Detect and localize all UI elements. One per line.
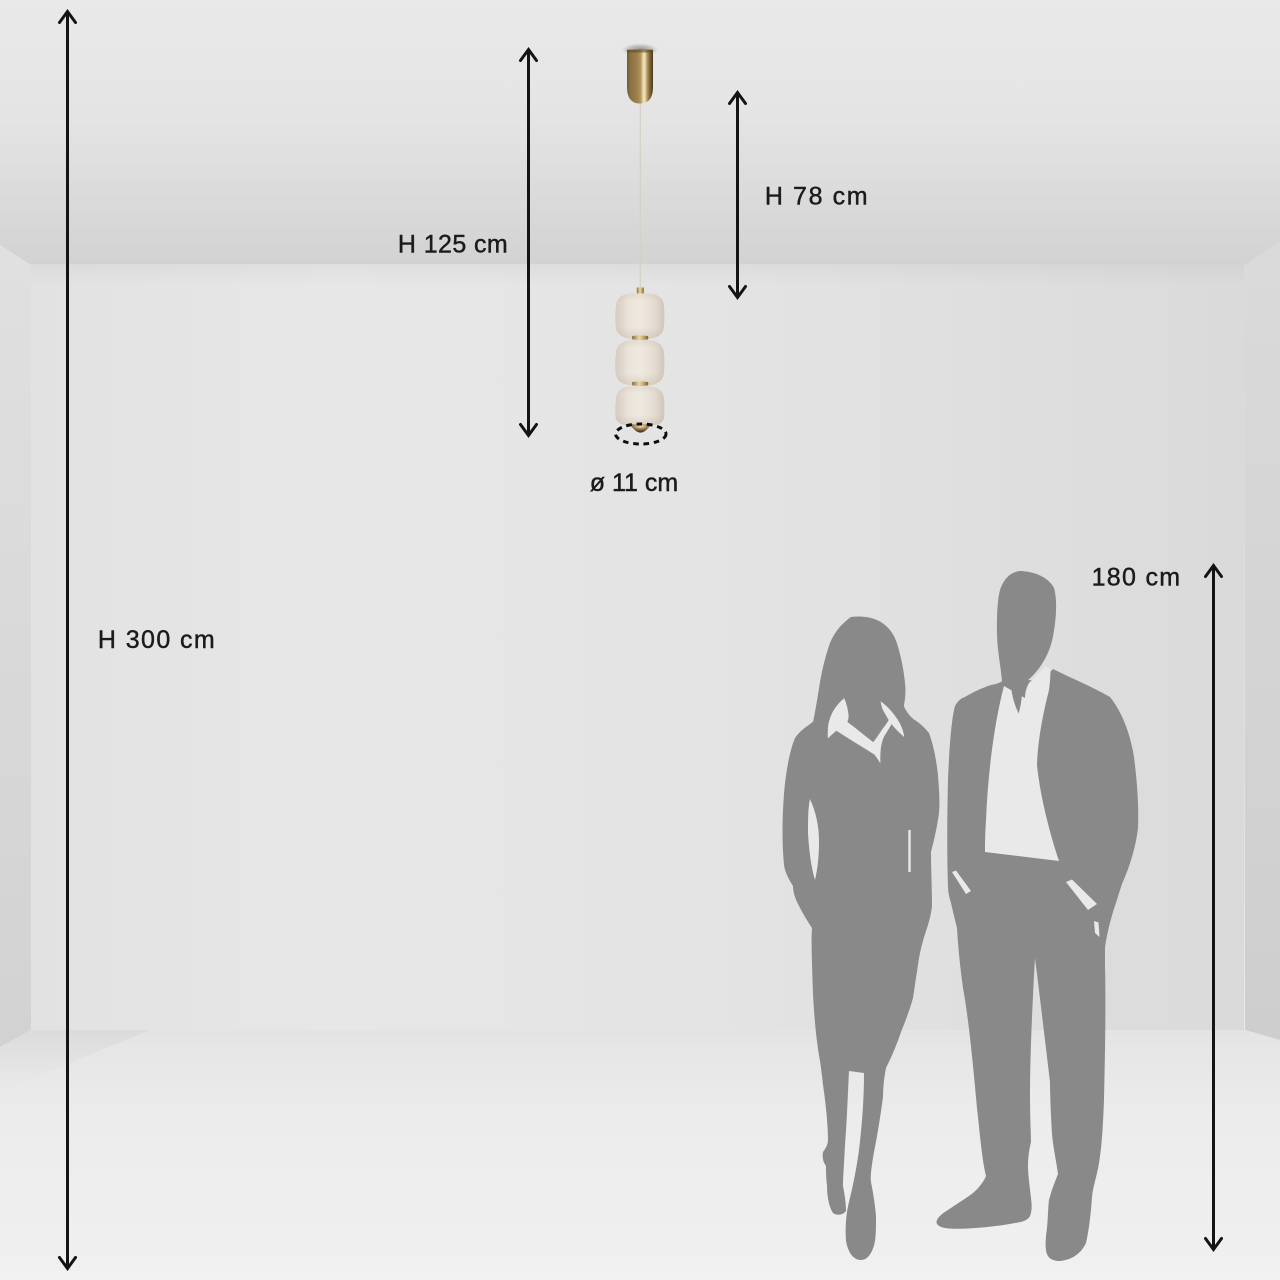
svg-text:ø 11 cm: ø 11 cm (590, 469, 678, 497)
svg-text:H 78 cm: H 78 cm (765, 183, 869, 211)
svg-text:H 300 cm: H 300 cm (98, 626, 216, 654)
svg-text:H 125 cm: H 125 cm (398, 230, 508, 258)
svg-text:180 cm: 180 cm (1092, 564, 1182, 592)
